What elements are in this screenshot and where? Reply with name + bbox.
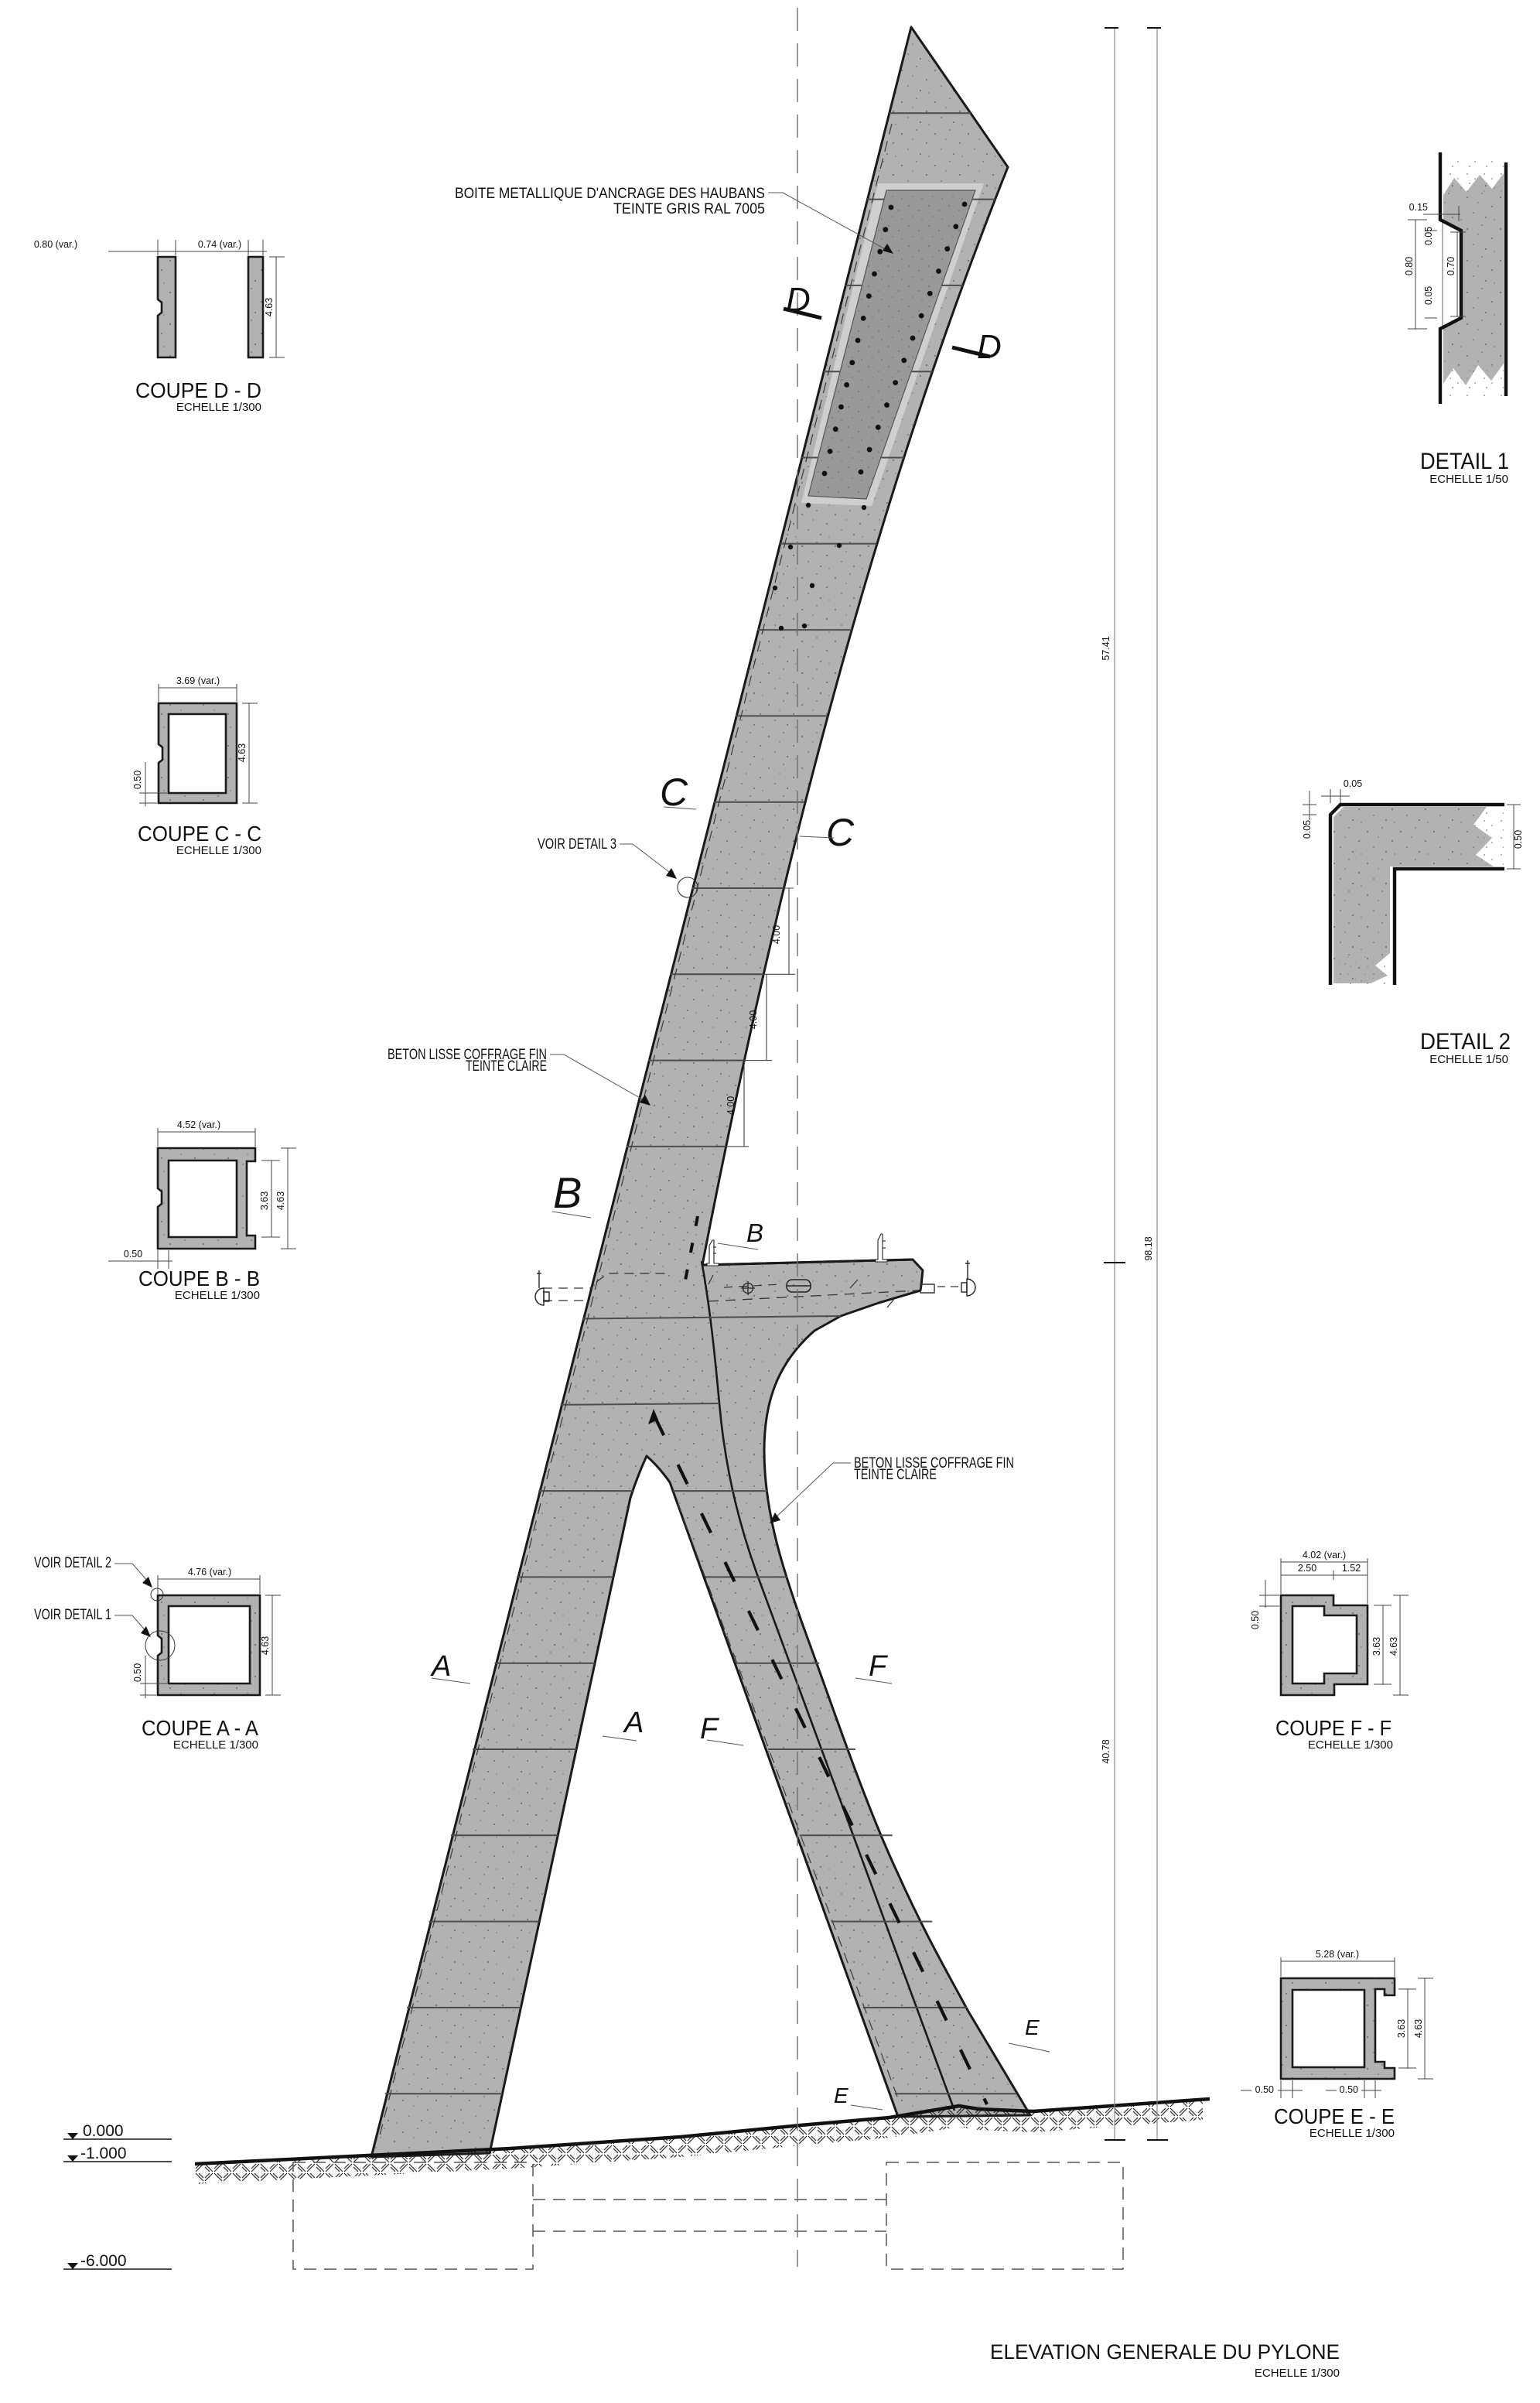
svg-text:ECHELLE 1/300: ECHELLE 1/300: [175, 1289, 260, 1302]
svg-text:-6.000: -6.000: [80, 2252, 127, 2270]
svg-text:ECHELLE 1/300: ECHELLE 1/300: [173, 1738, 258, 1752]
svg-text:COUPE E - E: COUPE E - E: [1274, 2104, 1395, 2128]
svg-text:0.74 (var.): 0.74 (var.): [198, 239, 241, 250]
svg-text:0.80 (var.): 0.80 (var.): [34, 239, 77, 250]
svg-text:TEINTE CLAIRE: TEINTE CLAIRE: [466, 1058, 547, 1075]
svg-text:0.15: 0.15: [1409, 202, 1428, 213]
svg-text:TEINTE GRIS RAL 7005: TEINTE GRIS RAL 7005: [613, 201, 765, 217]
svg-text:D: D: [977, 328, 1002, 366]
svg-text:0.000: 0.000: [83, 2122, 124, 2140]
svg-text:4.63: 4.63: [1413, 2019, 1424, 2038]
svg-text:57.41: 57.41: [1101, 636, 1111, 660]
svg-text:ECHELLE 1/300: ECHELLE 1/300: [176, 401, 261, 414]
svg-text:4.63: 4.63: [264, 298, 275, 316]
svg-text:0.50: 0.50: [1250, 1611, 1261, 1629]
svg-text:4.00: 4.00: [726, 1096, 736, 1115]
svg-text:ECHELLE 1/50: ECHELLE 1/50: [1429, 1053, 1508, 1066]
svg-text:DETAIL 1: DETAIL 1: [1420, 449, 1509, 474]
svg-text:40.78: 40.78: [1101, 1739, 1111, 1763]
svg-text:ECHELLE 1/300: ECHELLE 1/300: [1310, 2127, 1395, 2140]
svg-text:1.52: 1.52: [1342, 1563, 1361, 1574]
svg-text:VOIR DETAIL 1: VOIR DETAIL 1: [34, 1607, 111, 1623]
svg-text:0.50: 0.50: [1255, 2084, 1274, 2095]
svg-text:-1.000: -1.000: [80, 2145, 127, 2162]
svg-text:VOIR DETAIL 2: VOIR DETAIL 2: [34, 1555, 111, 1571]
svg-text:A: A: [430, 1650, 451, 1683]
svg-text:0.05: 0.05: [1423, 227, 1434, 245]
svg-text:2.50: 2.50: [1298, 1563, 1316, 1574]
svg-text:3.63: 3.63: [259, 1191, 270, 1210]
svg-text:0.50: 0.50: [1513, 830, 1524, 849]
svg-text:0.05: 0.05: [1344, 778, 1362, 789]
svg-text:3.69 (var.): 3.69 (var.): [176, 675, 220, 686]
svg-text:E: E: [1025, 2015, 1040, 2039]
svg-text:COUPE C - C: COUPE C - C: [138, 822, 261, 846]
svg-text:0.70: 0.70: [1446, 257, 1456, 275]
svg-text:0.05: 0.05: [1423, 286, 1434, 305]
svg-text:F: F: [869, 1650, 888, 1683]
svg-text:3.63: 3.63: [1371, 1637, 1382, 1656]
svg-text:0.50: 0.50: [132, 1663, 143, 1682]
svg-text:B: B: [553, 1168, 582, 1217]
svg-text:VOIR DETAIL 3: VOIR DETAIL 3: [538, 836, 616, 853]
svg-text:TEINTE CLAIRE: TEINTE CLAIRE: [854, 1467, 937, 1483]
svg-text:E: E: [834, 2083, 849, 2107]
svg-text:COUPE D - D: COUPE D - D: [135, 378, 261, 402]
svg-text:4.00: 4.00: [748, 1010, 759, 1029]
svg-text:ECHELLE 1/50: ECHELLE 1/50: [1429, 473, 1508, 486]
svg-text:A: A: [623, 1707, 644, 1739]
svg-text:3.63: 3.63: [1396, 2019, 1407, 2038]
svg-text:4.63: 4.63: [260, 1636, 271, 1655]
svg-text:COUPE B - B: COUPE B - B: [138, 1266, 260, 1290]
svg-text:0.50: 0.50: [132, 771, 143, 789]
svg-text:0.80: 0.80: [1404, 257, 1415, 275]
svg-text:BOITE METALLIQUE D'ANCRAGE DES: BOITE METALLIQUE D'ANCRAGE DES HAUBANS: [455, 186, 765, 202]
svg-text:COUPE F - F: COUPE F - F: [1275, 1716, 1391, 1740]
svg-text:COUPE A - A: COUPE A - A: [142, 1716, 258, 1740]
svg-text:C: C: [826, 811, 855, 854]
svg-text:4.02 (var.): 4.02 (var.): [1303, 1550, 1346, 1560]
svg-text:4.52 (var.): 4.52 (var.): [177, 1119, 220, 1130]
svg-text:ECHELLE 1/300: ECHELLE 1/300: [176, 844, 261, 857]
svg-text:0.05: 0.05: [1302, 820, 1313, 839]
svg-text:4.63: 4.63: [275, 1191, 286, 1210]
svg-text:ECHELLE 1/300: ECHELLE 1/300: [1308, 1738, 1393, 1752]
svg-text:4.00: 4.00: [771, 925, 782, 944]
svg-text:DETAIL 2: DETAIL 2: [1420, 1029, 1511, 1055]
svg-text:98.18: 98.18: [1143, 1236, 1154, 1260]
svg-text:0.50: 0.50: [124, 1249, 142, 1260]
svg-text:ELEVATION GENERALE DU PYLONE: ELEVATION GENERALE DU PYLONE: [990, 2340, 1340, 2364]
svg-text:4.63: 4.63: [237, 743, 248, 762]
svg-text:4.76 (var.): 4.76 (var.): [188, 1567, 231, 1578]
svg-text:0.50: 0.50: [1340, 2084, 1358, 2095]
svg-text:5.28 (var.): 5.28 (var.): [1316, 1949, 1359, 1960]
svg-text:ECHELLE 1/300: ECHELLE 1/300: [1255, 2367, 1340, 2380]
svg-text:B: B: [746, 1219, 763, 1247]
svg-text:4.63: 4.63: [1388, 1637, 1399, 1656]
